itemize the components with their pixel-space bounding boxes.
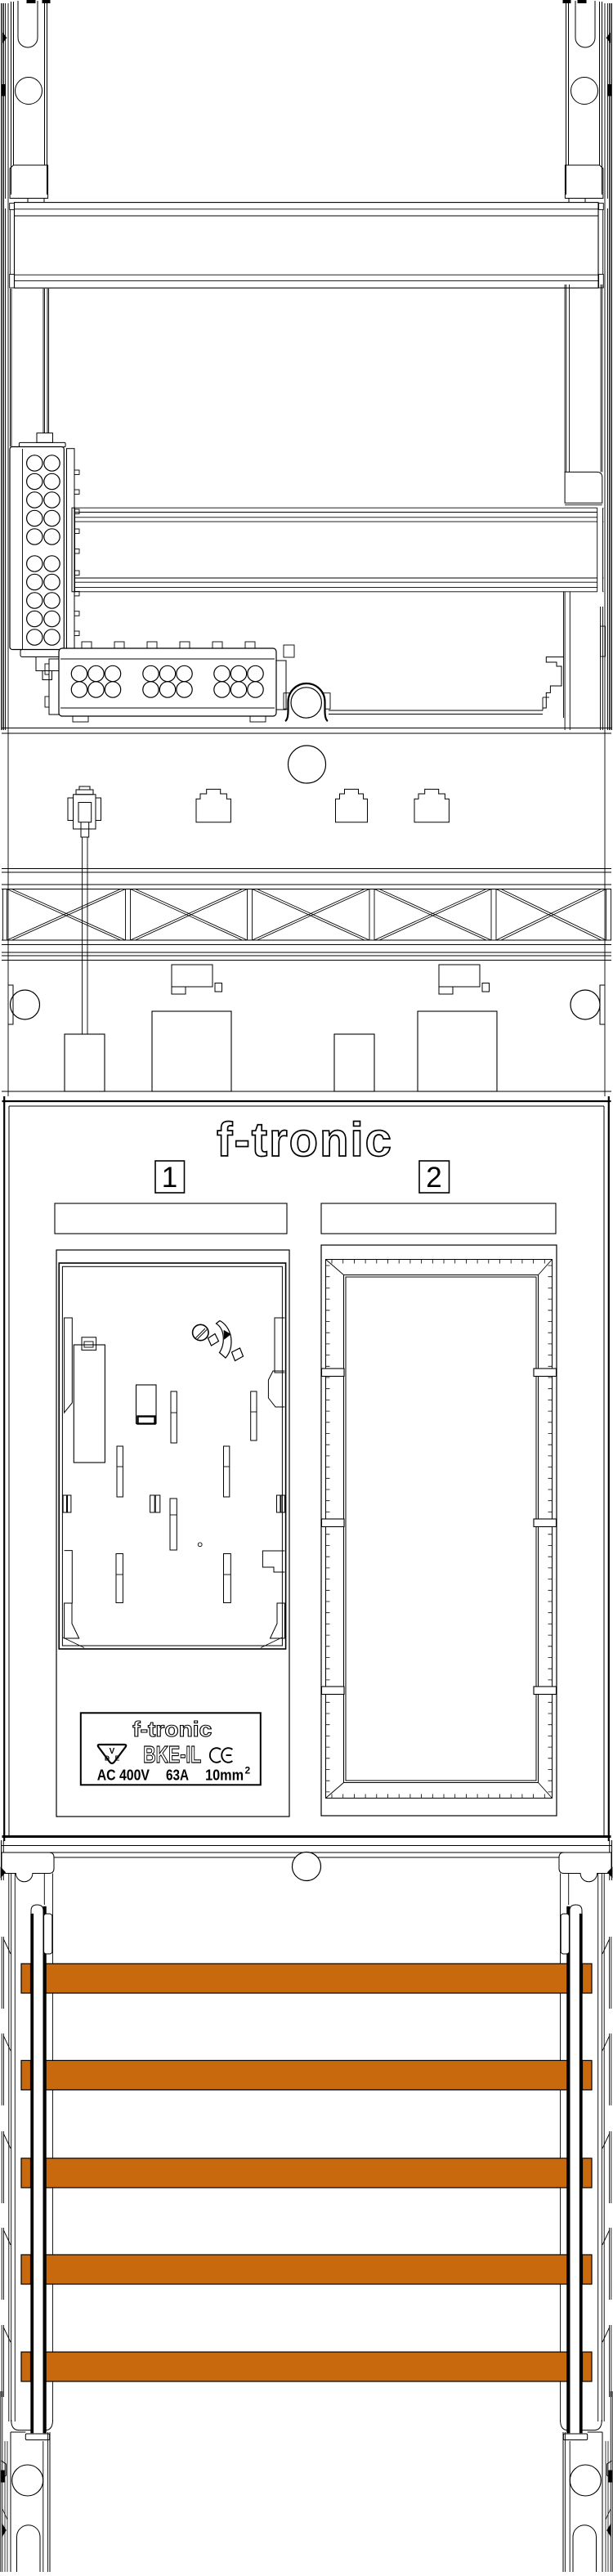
svg-text:2: 2 bbox=[245, 1765, 251, 1776]
svg-text:E: E bbox=[115, 1754, 120, 1763]
svg-text:V: V bbox=[110, 1747, 115, 1756]
svg-text:63A: 63A bbox=[166, 1766, 189, 1783]
svg-text:BKE-IL: BKE-IL bbox=[143, 1742, 201, 1768]
svg-text:f-tronic: f-tronic bbox=[217, 1113, 393, 1167]
svg-text:2: 2 bbox=[426, 1162, 441, 1194]
svg-text:10mm: 10mm bbox=[205, 1766, 244, 1783]
svg-text:AC 400V: AC 400V bbox=[97, 1766, 150, 1783]
svg-text:f-tronic: f-tronic bbox=[132, 1717, 212, 1741]
svg-text:1: 1 bbox=[162, 1162, 177, 1194]
svg-text:D: D bbox=[105, 1754, 110, 1763]
